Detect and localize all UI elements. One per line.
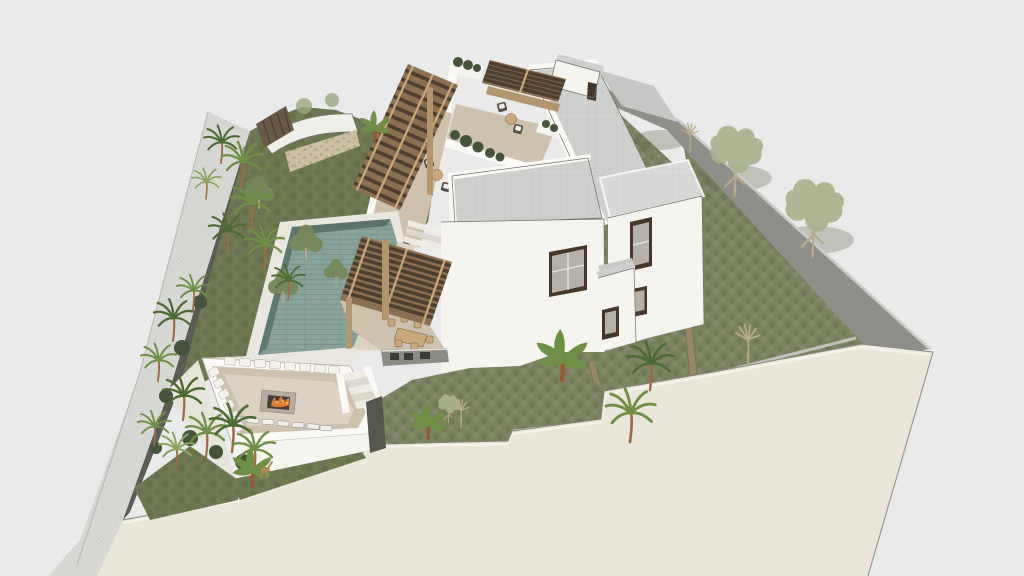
fire-pit <box>260 390 296 414</box>
villa-site-render <box>0 0 1024 576</box>
building-main-villa <box>441 154 605 372</box>
pergola-post <box>382 240 389 320</box>
architectural-render-viewport <box>0 0 1024 576</box>
window-main <box>549 245 587 297</box>
pergola-post <box>427 86 433 196</box>
window-lower <box>602 306 619 340</box>
building-lower-cube <box>596 262 636 352</box>
pergola-post <box>346 298 352 352</box>
